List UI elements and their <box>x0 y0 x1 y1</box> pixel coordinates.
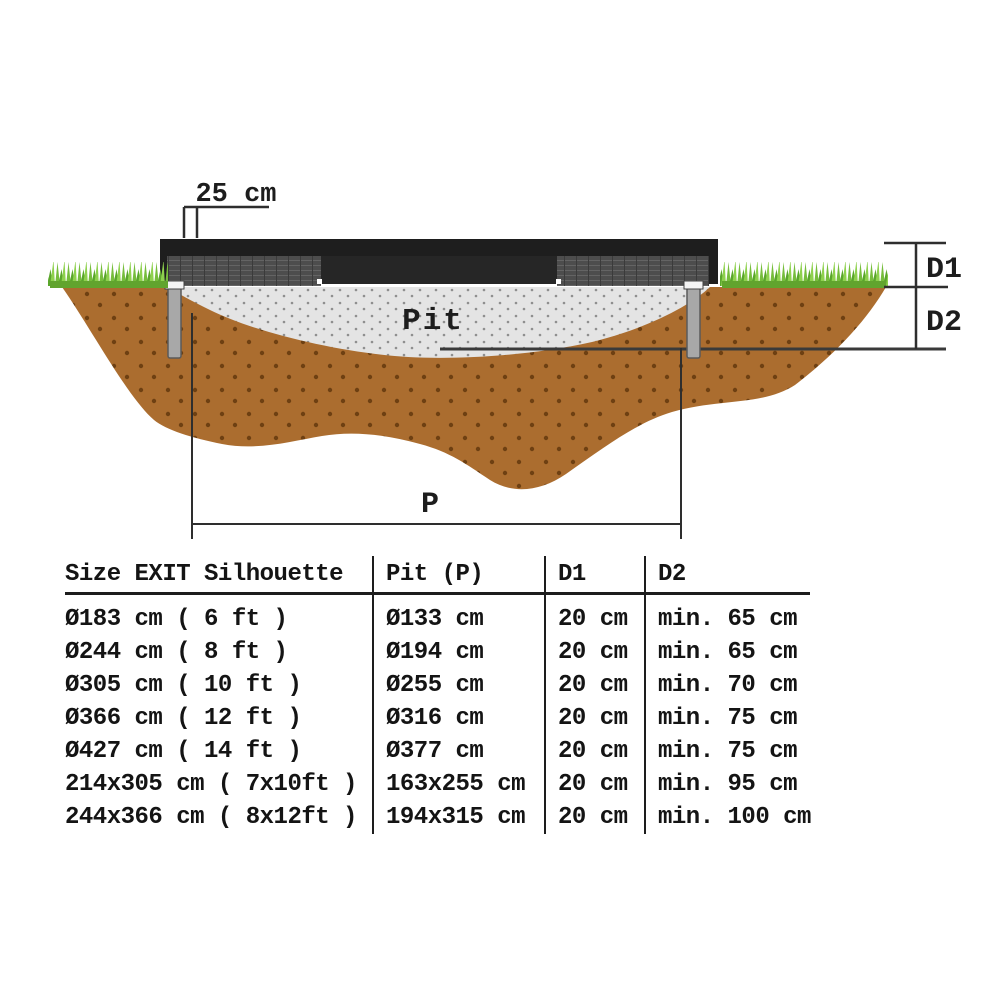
trampoline-leg-right <box>687 282 700 358</box>
cell-d1: 20 cm <box>544 771 644 798</box>
column-separator-2 <box>544 556 546 834</box>
table-row: Ø366 cm ( 12 ft ) Ø316 cm 20 cm min. 75 … <box>65 702 940 735</box>
depth1-label: D1 <box>926 253 962 287</box>
cell-d1: 20 cm <box>544 738 644 765</box>
cell-d1: 20 cm <box>544 606 644 633</box>
table-row: Ø427 cm ( 14 ft ) Ø377 cm 20 cm min. 75 … <box>65 735 940 768</box>
cell-d2: min. 100 cm <box>644 804 940 831</box>
pad-corner-highlight-right <box>556 279 561 284</box>
depth2-label: D2 <box>926 306 962 340</box>
cell-pit: Ø194 cm <box>372 639 544 666</box>
jumping-mat <box>321 256 557 284</box>
cell-d2: min. 75 cm <box>644 705 940 732</box>
cell-pit: 163x255 cm <box>372 771 544 798</box>
size-spec-table: Size EXIT Silhouette Pit (P) D1 D2 Ø183 … <box>65 556 940 834</box>
cell-d1: 20 cm <box>544 804 644 831</box>
cell-size: Ø305 cm ( 10 ft ) <box>65 672 372 699</box>
offset-dimension <box>184 207 269 238</box>
cell-d1: 20 cm <box>544 705 644 732</box>
column-separator-3 <box>644 556 646 834</box>
cell-pit: Ø133 cm <box>372 606 544 633</box>
cell-size: 244x366 cm ( 8x12ft ) <box>65 804 372 831</box>
safety-pad-left <box>167 256 321 286</box>
header-size: Size EXIT Silhouette <box>65 561 372 588</box>
cell-d1: 20 cm <box>544 639 644 666</box>
trampoline-leg-left <box>168 282 181 358</box>
grass-left <box>48 262 168 288</box>
cell-size: Ø244 cm ( 8 ft ) <box>65 639 372 666</box>
table-row: 244x366 cm ( 8x12ft ) 194x315 cm 20 cm m… <box>65 801 940 834</box>
pad-corner-highlight-left <box>317 279 322 284</box>
pit-width-label: P <box>421 488 439 522</box>
cell-d1: 20 cm <box>544 672 644 699</box>
cell-d2: min. 65 cm <box>644 639 940 666</box>
table-row: Ø244 cm ( 8 ft ) Ø194 cm 20 cm min. 65 c… <box>65 636 940 669</box>
grass-right <box>720 262 888 288</box>
cell-d2: min. 75 cm <box>644 738 940 765</box>
cell-size: Ø427 cm ( 14 ft ) <box>65 738 372 765</box>
leg-cap-right <box>684 281 703 289</box>
table-row: Ø305 cm ( 10 ft ) Ø255 cm 20 cm min. 70 … <box>65 669 940 702</box>
cell-size: 214x305 cm ( 7x10ft ) <box>65 771 372 798</box>
cell-pit: Ø255 cm <box>372 672 544 699</box>
cell-size: Ø366 cm ( 12 ft ) <box>65 705 372 732</box>
table-row: Ø183 cm ( 6 ft ) Ø133 cm 20 cm min. 65 c… <box>65 603 940 636</box>
table-header-row: Size EXIT Silhouette Pit (P) D1 D2 <box>65 556 940 592</box>
cell-pit: Ø316 cm <box>372 705 544 732</box>
cell-size: Ø183 cm ( 6 ft ) <box>65 606 372 633</box>
page: 25 cm D1 D2 P Pit Size EXIT Silhouette P… <box>0 0 1000 1000</box>
trampoline-frame <box>160 239 718 289</box>
cell-pit: Ø377 cm <box>372 738 544 765</box>
header-pit: Pit (P) <box>372 561 544 588</box>
frame-top-bar <box>160 239 718 256</box>
offset-label: 25 cm <box>195 180 276 210</box>
column-separator-1 <box>372 556 374 834</box>
trampoline-pit-diagram: 25 cm D1 D2 P Pit <box>0 0 1000 548</box>
cell-d2: min. 70 cm <box>644 672 940 699</box>
table-body: Ø183 cm ( 6 ft ) Ø133 cm 20 cm min. 65 c… <box>65 592 940 834</box>
cell-d2: min. 95 cm <box>644 771 940 798</box>
frame-end-cap-right <box>709 239 718 284</box>
cell-pit: 194x315 cm <box>372 804 544 831</box>
header-d2: D2 <box>644 561 940 588</box>
cell-d2: min. 65 cm <box>644 606 940 633</box>
table-header-rule <box>65 592 810 595</box>
pit-label: Pit <box>402 304 464 339</box>
table-row: 214x305 cm ( 7x10ft ) 163x255 cm 20 cm m… <box>65 768 940 801</box>
header-d1: D1 <box>544 561 644 588</box>
